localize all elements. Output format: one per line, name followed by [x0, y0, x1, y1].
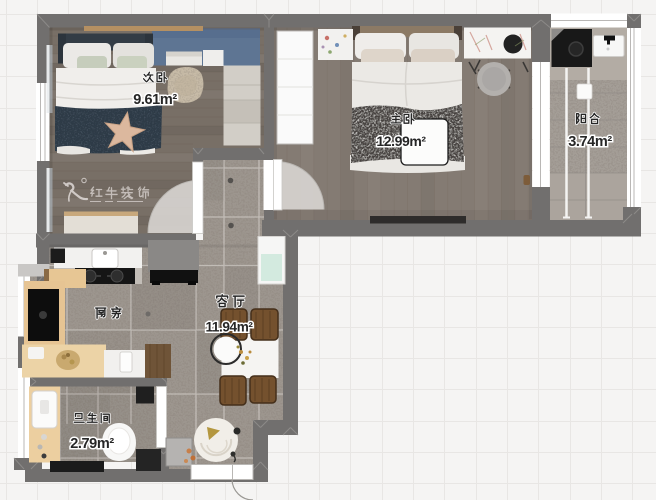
svg-text:9.61m²: 9.61m² [133, 92, 177, 108]
svg-text:3.74m²: 3.74m² [568, 134, 612, 150]
svg-text:2.79m²: 2.79m² [70, 436, 114, 452]
svg-text:12.99m²: 12.99m² [376, 133, 426, 149]
svg-text:11.94m²: 11.94m² [205, 320, 253, 335]
